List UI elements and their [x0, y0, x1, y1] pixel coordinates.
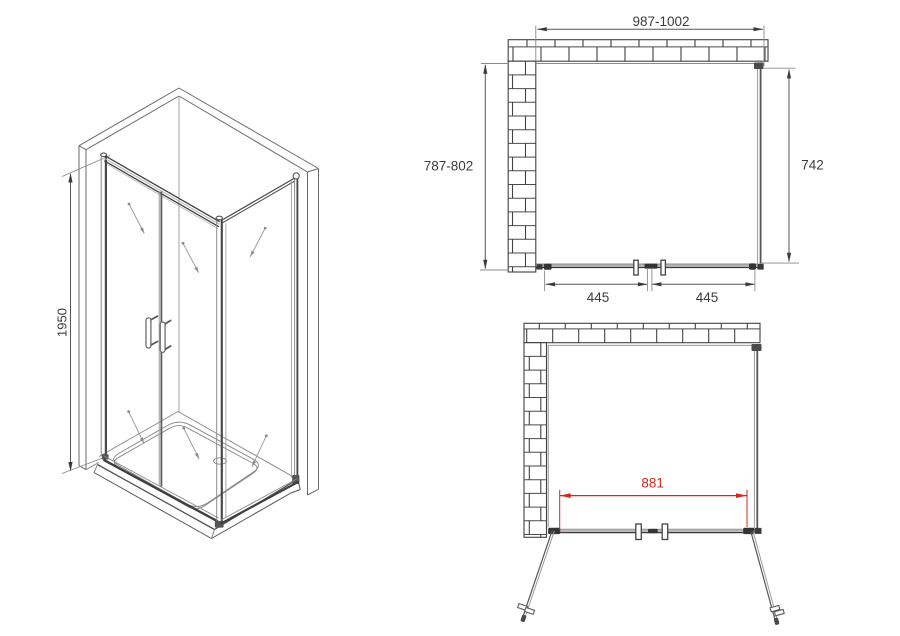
svg-text:881: 881 [641, 476, 664, 491]
svg-text:1950: 1950 [55, 308, 70, 337]
svg-text:445: 445 [587, 290, 610, 305]
svg-text:787-802: 787-802 [424, 159, 474, 174]
svg-text:445: 445 [696, 290, 719, 305]
svg-text:987-1002: 987-1002 [632, 14, 689, 29]
svg-text:742: 742 [801, 158, 824, 173]
